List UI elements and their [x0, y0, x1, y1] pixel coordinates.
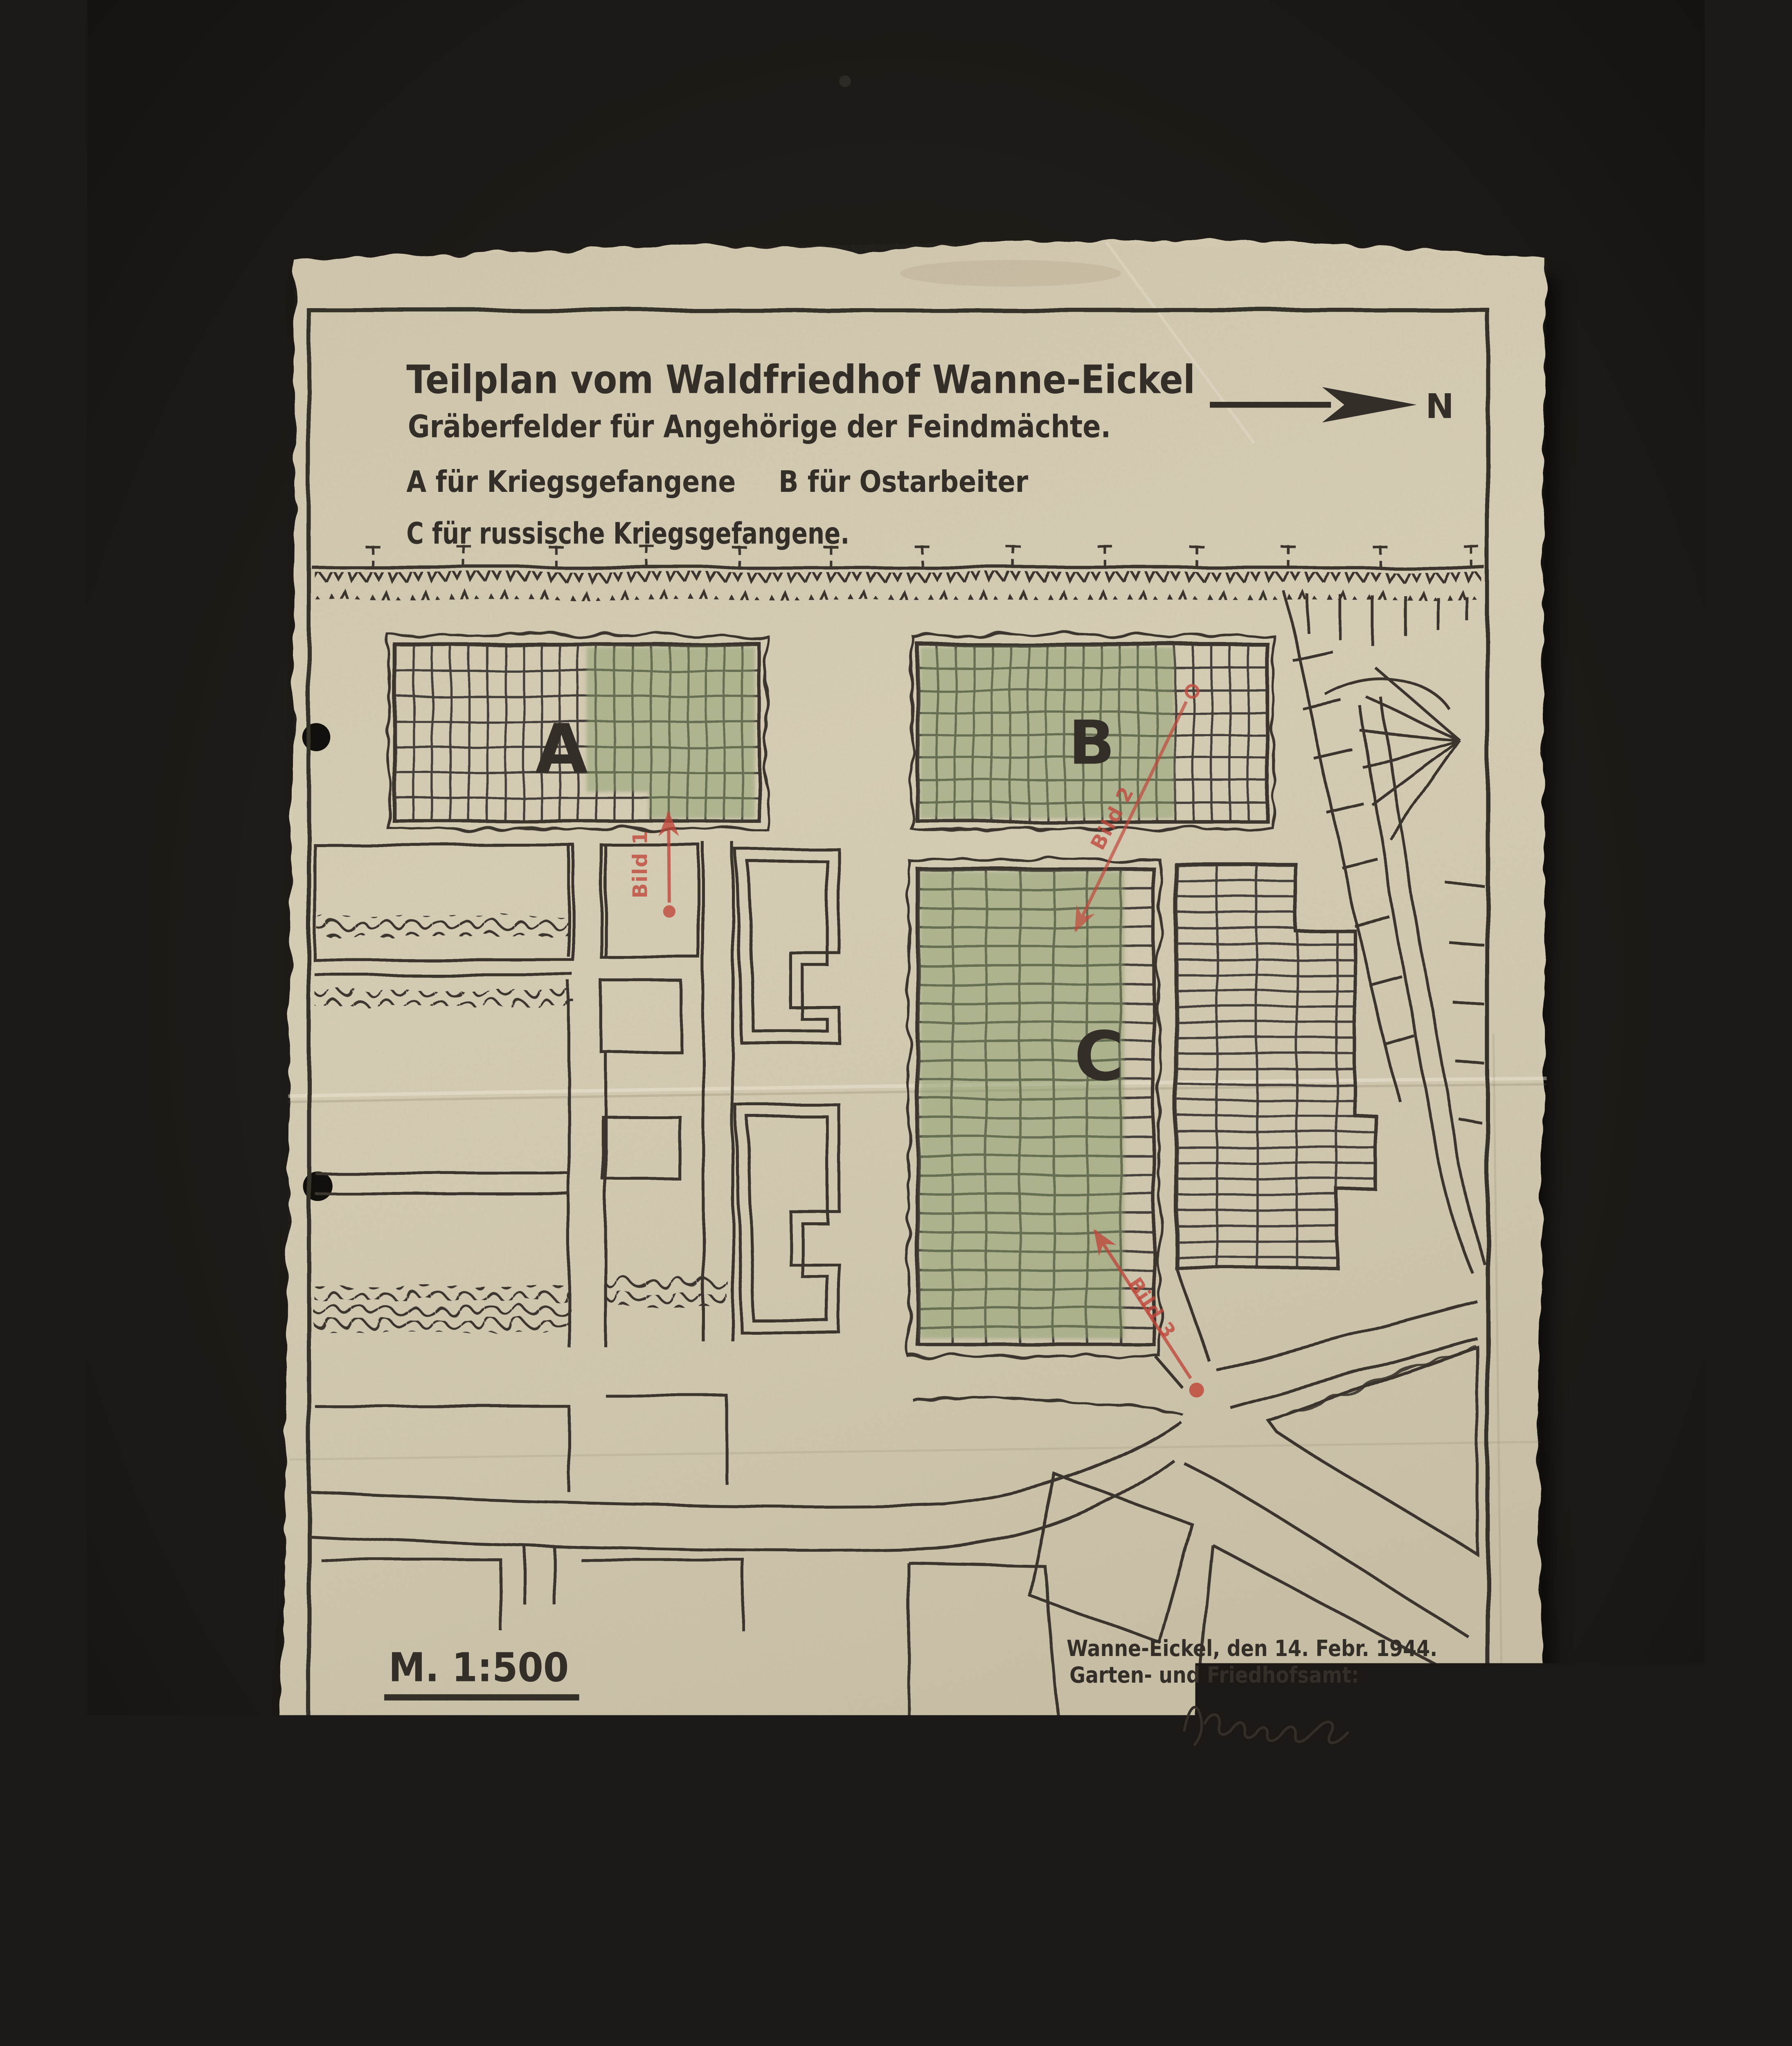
- scale-label: M. 1:500: [389, 1644, 569, 1690]
- page-subtitle: Gräberfelder für Angehörige der Feindmäc…: [408, 409, 1111, 445]
- scanned-cemetery-plan: A B C Teilplan vom Waldfriedhof Wanne-Ei…: [0, 0, 1792, 2046]
- view-arrow-1: [669, 813, 669, 903]
- footer-place-date: Wanne-Eickel, den 14. Febr. 1944.: [1067, 1636, 1437, 1661]
- punch-hole-top: [302, 723, 331, 751]
- page-title: Teilplan vom Waldfriedhof Wanne-Eickel: [406, 356, 1195, 402]
- field-a-green-strip: [648, 647, 755, 818]
- legend-entry-b: B für Ostarbeiter: [779, 465, 1028, 499]
- field-a-label: A: [535, 710, 588, 789]
- footer-office: Garten- und Friedhofsamt:: [1069, 1662, 1359, 1688]
- north-label: N: [1425, 387, 1454, 426]
- boundary-fence: [312, 545, 1484, 600]
- legend-entry-c: C für russische Kriegsgefangene.: [406, 517, 849, 551]
- field-b-label: B: [1069, 708, 1115, 778]
- field-c-green: [921, 872, 1124, 1338]
- photo-mark-label-1: Bild 1: [629, 830, 652, 898]
- camera-dot-1: [663, 905, 675, 917]
- legend-entry-a: A für Kriegsgefangene: [406, 465, 736, 499]
- field-c-label: C: [1074, 1017, 1124, 1096]
- stain: [900, 260, 1121, 286]
- dust-speck: [839, 75, 851, 87]
- camera-dot-3: [1189, 1383, 1204, 1397]
